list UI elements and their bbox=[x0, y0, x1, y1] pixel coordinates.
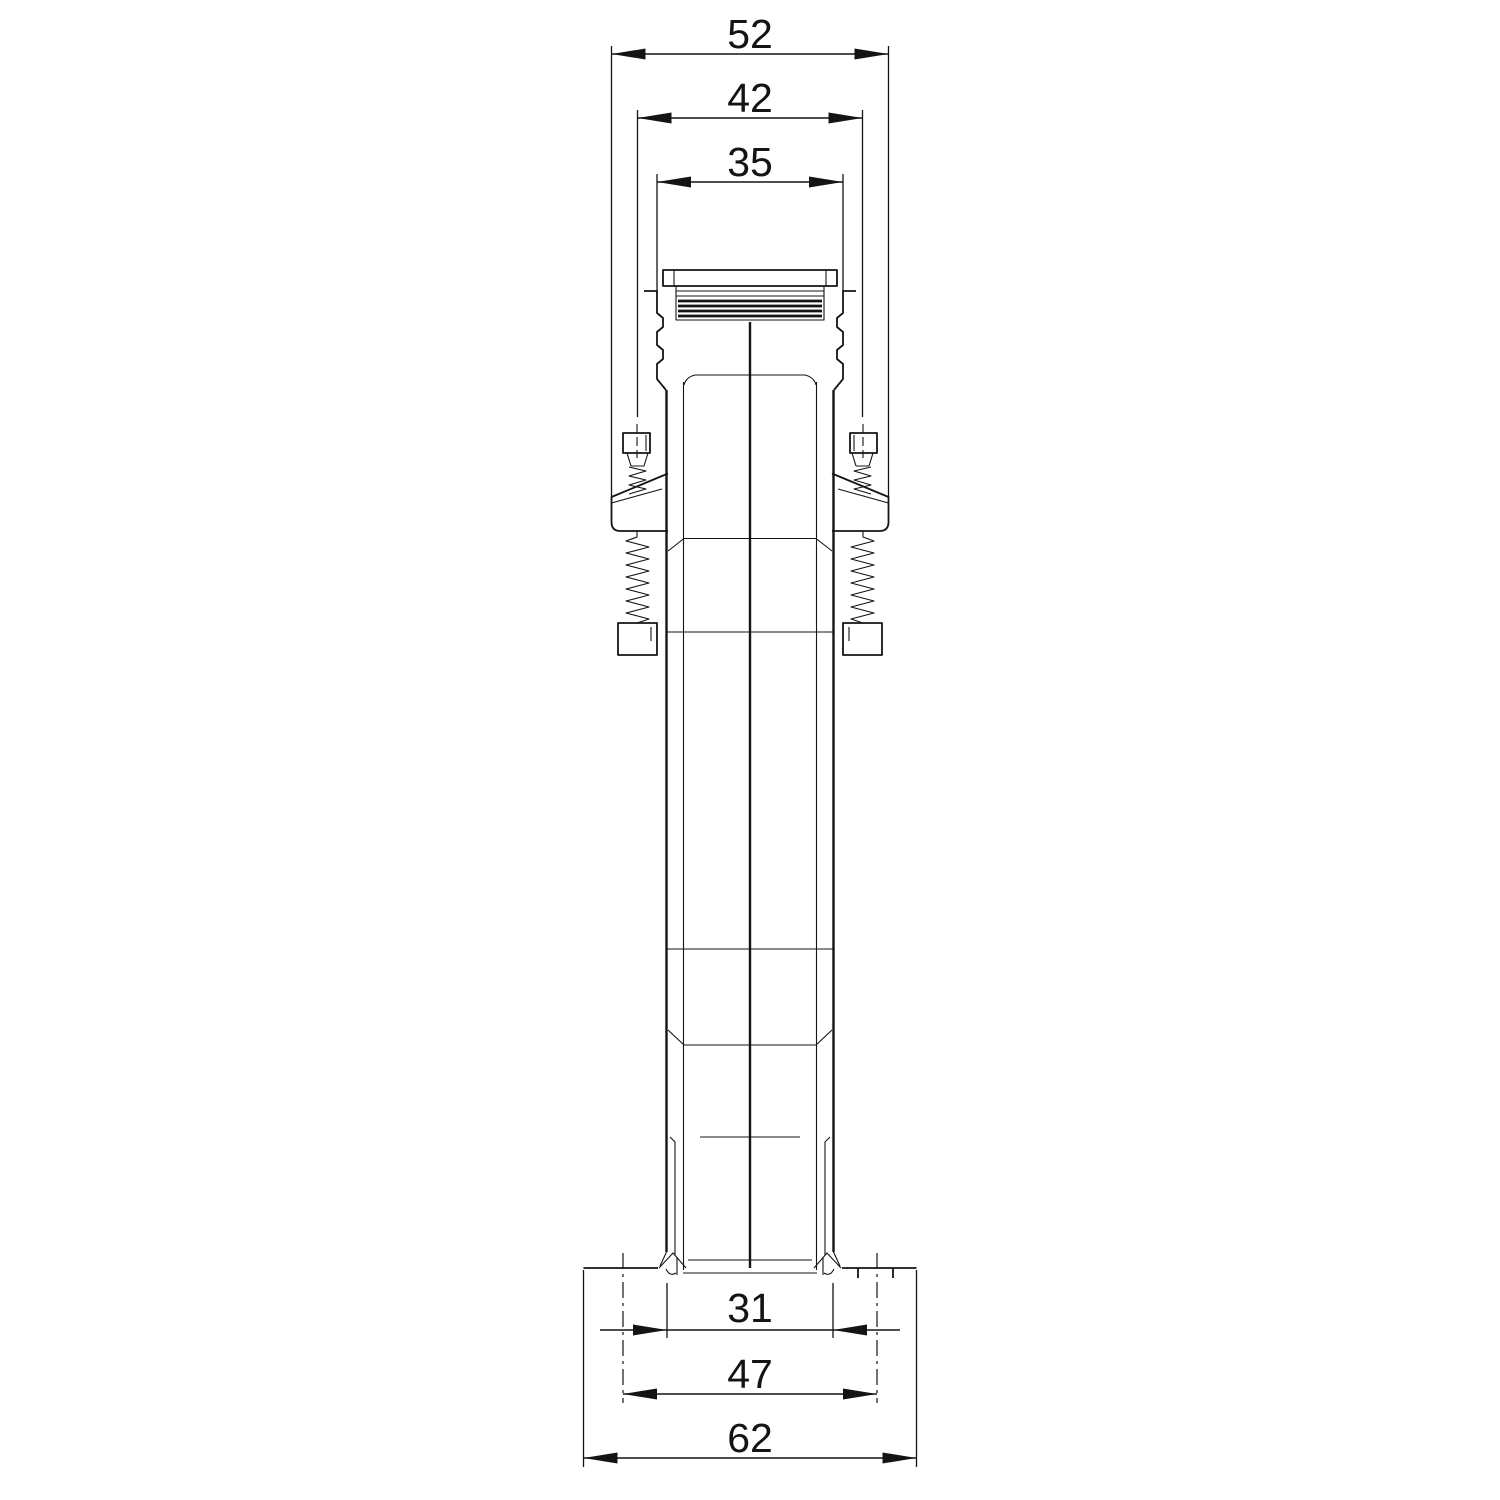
dimension-42-label: 42 bbox=[727, 75, 773, 121]
screw-thread-left bbox=[629, 467, 646, 494]
dimension-47-label: 47 bbox=[727, 1351, 773, 1397]
dimensioned-drawing: 52 42 35 31 47 62 bbox=[0, 0, 1500, 1500]
flange-left bbox=[644, 291, 666, 390]
flange-right bbox=[834, 291, 856, 390]
clip-slot-left bbox=[670, 1137, 675, 1255]
dimension-35-label: 35 bbox=[727, 139, 773, 185]
arrow-left-icon bbox=[623, 1389, 657, 1400]
arrow-left-icon bbox=[612, 49, 646, 60]
technical-drawing-page: 52 42 35 31 47 62 bbox=[0, 0, 1500, 1500]
arrow-right-icon bbox=[829, 113, 863, 124]
clamp-right bbox=[832, 424, 889, 655]
arrow-left-icon bbox=[657, 177, 691, 188]
dimension-31-label: 31 bbox=[727, 1285, 773, 1331]
arrow-left-icon bbox=[638, 113, 672, 124]
arrow-right-icon bbox=[633, 1325, 667, 1336]
foot-left-curl bbox=[666, 1269, 676, 1274]
clamp-left bbox=[612, 424, 669, 655]
bracket-right-edge bbox=[838, 489, 889, 503]
spring-right bbox=[851, 531, 874, 623]
arrow-left-icon bbox=[584, 1453, 618, 1464]
arrow-right-icon bbox=[855, 49, 889, 60]
dimension-52-label: 52 bbox=[727, 11, 773, 57]
terminal-cover bbox=[663, 270, 837, 320]
dimension-31: 31 bbox=[600, 1283, 900, 1338]
dimension-62-label: 62 bbox=[727, 1415, 773, 1461]
arrow-left-icon bbox=[833, 1325, 867, 1336]
clip-slot-right bbox=[825, 1137, 830, 1255]
arrow-right-icon bbox=[843, 1389, 877, 1400]
body-column bbox=[667, 322, 834, 1270]
arrow-right-icon bbox=[883, 1453, 917, 1464]
foot-right-curl bbox=[824, 1269, 834, 1274]
cover-cap bbox=[663, 270, 837, 286]
screw-thread-right bbox=[854, 467, 871, 494]
spring-left bbox=[626, 531, 649, 623]
arrow-right-icon bbox=[809, 177, 843, 188]
bracket-left-edge bbox=[612, 489, 663, 503]
